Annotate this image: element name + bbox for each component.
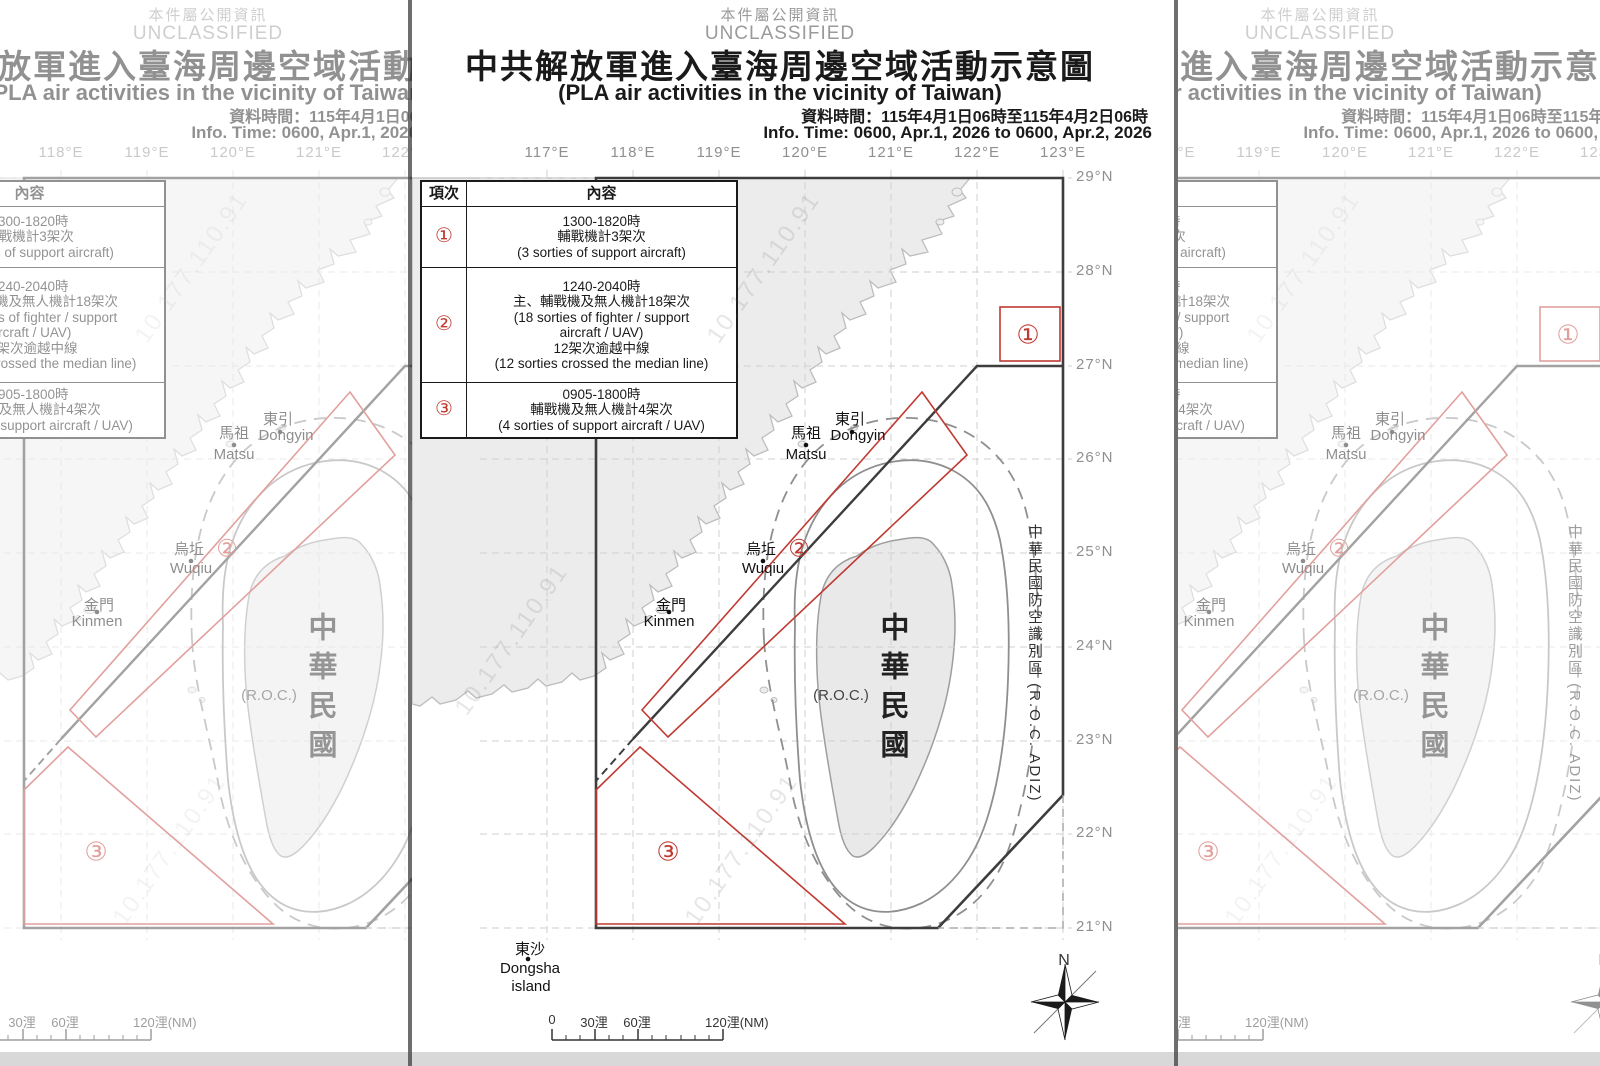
place-dongsha-en1: Dongsha	[500, 960, 560, 977]
legend-line: (4 sorties of support aircraft / UAV)	[469, 418, 734, 434]
legend-line: (3 sorties of support aircraft)	[469, 245, 734, 261]
region-2-marker: ②	[788, 535, 810, 564]
lon-label: 121°E	[868, 144, 914, 161]
info-time-en: Info. Time: 0600, Apr.1, 2026 to 0600, A…	[763, 123, 1152, 143]
lon-label: 117°E	[525, 144, 570, 161]
legend-row2-item: ②	[422, 268, 467, 382]
legend-line: 輔戰機計3架次	[469, 229, 734, 245]
legend-header-row: 項次 內容	[422, 182, 736, 206]
legend-row-3: ③ 0905-1800時 輔戰機及無人機計4架次 (4 sorties of s…	[422, 382, 736, 437]
scale-30: 30浬	[580, 1012, 607, 1031]
legend-col1-header: 項次	[422, 182, 467, 206]
lon-label: 119°E	[697, 144, 742, 161]
lat-label: 23°N	[1076, 731, 1114, 748]
lat-label: 27°N	[1076, 356, 1114, 373]
screenshot-root: 本件屬公開資訊 UNCLASSIFIED 中共解放軍進入臺海周邊空域活動示意圖 …	[0, 0, 1600, 1066]
place-kinmen-zh: 金門	[656, 594, 686, 615]
lon-label: 122°E	[954, 144, 1000, 161]
lon-label: 118°E	[611, 144, 656, 161]
lat-label: 26°N	[1076, 449, 1114, 466]
legend-line: 0905-1800時	[469, 387, 734, 403]
compass-rose	[1031, 964, 1099, 1040]
legend-row3-content: 0905-1800時 輔戰機及無人機計4架次 (4 sorties of sup…	[467, 383, 736, 437]
place-matsu-en: Matsu	[786, 446, 827, 463]
lon-label: 123°E	[1040, 144, 1086, 161]
legend-line: (18 sorties of fighter / support	[469, 310, 734, 326]
legend-line: 12架次逾越中線	[469, 341, 734, 357]
left-fade-overlay	[0, 0, 410, 1066]
place-matsu-zh: 馬祖	[791, 422, 821, 443]
lon-label: 120°E	[782, 144, 828, 161]
scale-120: 120浬(NM)	[705, 1012, 769, 1031]
legend-line: 輔戰機及無人機計4架次	[469, 402, 734, 418]
place-dongyin-en: Dongyin	[830, 427, 885, 444]
right-fade-overlay	[1176, 0, 1600, 1066]
place-wuqiu-zh: 烏坵	[746, 538, 776, 559]
legend-line: 主、輔戰機及無人機計18架次	[469, 294, 734, 310]
lat-label: 24°N	[1076, 637, 1114, 654]
legend-row-2: ② 1240-2040時 主、輔戰機及無人機計18架次 (18 sorties …	[422, 267, 736, 382]
legend-line: 1300-1820時	[469, 214, 734, 230]
region-1-marker: ①	[1016, 320, 1039, 351]
place-wuqiu-en: Wuqiu	[742, 560, 784, 577]
place-dongsha-en2: island	[511, 978, 550, 995]
lat-label: 21°N	[1076, 918, 1114, 935]
map-panel: 本件屬公開資訊 UNCLASSIFIED 中共解放軍進入臺海周邊空域活動示意圖 …	[412, 0, 1178, 1066]
legend-line: (12 sorties crossed the median line)	[469, 356, 734, 372]
panel-right-edge	[1174, 0, 1178, 1066]
bottom-gray-band	[0, 1052, 1600, 1066]
legend-line: 1240-2040時	[469, 279, 734, 295]
center-panel-slot: 本件屬公開資訊 UNCLASSIFIED 中共解放軍進入臺海周邊空域活動示意圖 …	[412, 0, 1178, 1066]
place-dongsha-zh: 東沙	[515, 938, 545, 959]
scale-0: 0	[548, 1012, 555, 1027]
legend-line: aircraft / UAV)	[469, 325, 734, 341]
legend-col2-header: 內容	[467, 182, 736, 206]
legend-row2-content: 1240-2040時 主、輔戰機及無人機計18架次 (18 sorties of…	[467, 268, 736, 382]
region-3-marker: ③	[656, 837, 679, 868]
lat-label: 29°N	[1076, 168, 1114, 185]
legend-row3-item: ③	[422, 383, 467, 437]
lat-label: 22°N	[1076, 824, 1114, 841]
place-dongyin-zh: 東引	[835, 408, 865, 429]
classification-zh: 本件屬公開資訊	[720, 4, 839, 25]
legend-row1-content: 1300-1820時 輔戰機計3架次 (3 sorties of support…	[467, 207, 736, 267]
sortie-legend-table: 項次 內容 ① 1300-1820時 輔戰機計3架次 (3 sorties of…	[420, 180, 738, 439]
scale-60: 60浬	[623, 1012, 650, 1031]
legend-row-1: ① 1300-1820時 輔戰機計3架次 (3 sorties of suppo…	[422, 206, 736, 267]
taiwan-label-en: (R.O.C.)	[813, 687, 869, 704]
panel-left-edge	[408, 0, 412, 1066]
place-kinmen-en: Kinmen	[644, 613, 695, 630]
adiz-boundary-label: 中華民國防空識別區 (R.O.C. ADIZ)	[1024, 524, 1045, 803]
taiwan-label-zh: 中華民國	[872, 612, 914, 768]
compass-north-label: N	[1058, 952, 1070, 970]
legend-row1-item: ①	[422, 207, 467, 267]
lat-label: 28°N	[1076, 262, 1114, 279]
lat-label: 25°N	[1076, 543, 1114, 560]
